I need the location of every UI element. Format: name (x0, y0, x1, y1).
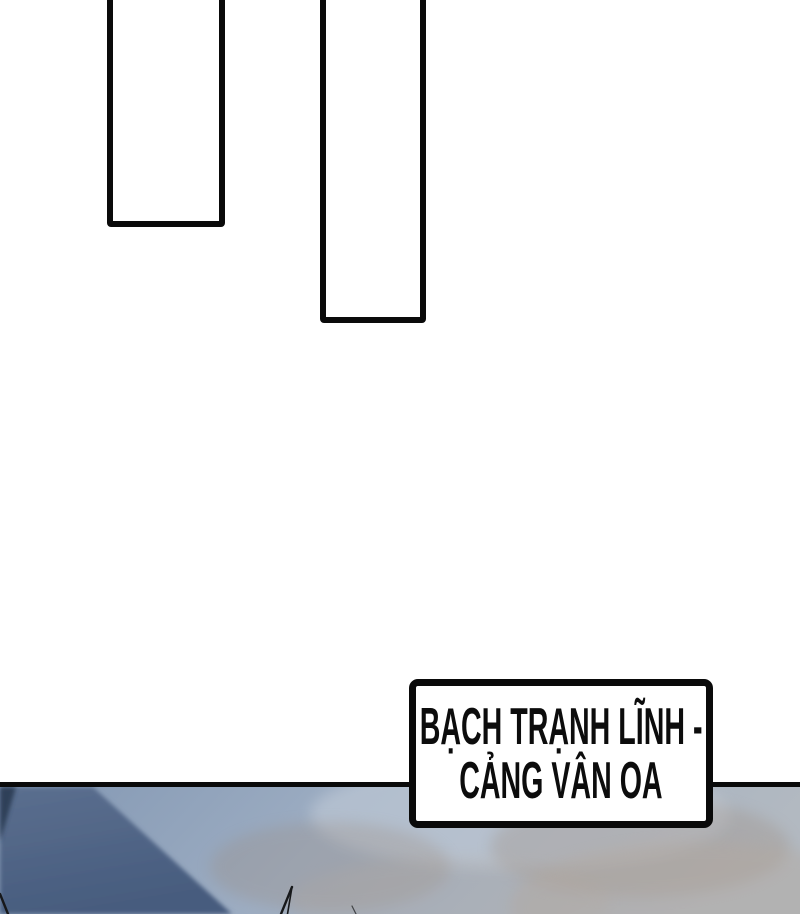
caption-box: BẠCH TRẠNH LĨNH - CẢNG VÂN OA (409, 679, 713, 828)
caption-line-2: CẢNG VÂN OA (459, 754, 662, 808)
panel-outline-top-left (107, 0, 225, 227)
panel-outline-top-right (320, 0, 426, 323)
caption-line-1: BẠCH TRẠNH LĨNH - (420, 700, 703, 754)
comic-page: { "page": { "background": "#ffffff" }, "… (0, 0, 800, 914)
